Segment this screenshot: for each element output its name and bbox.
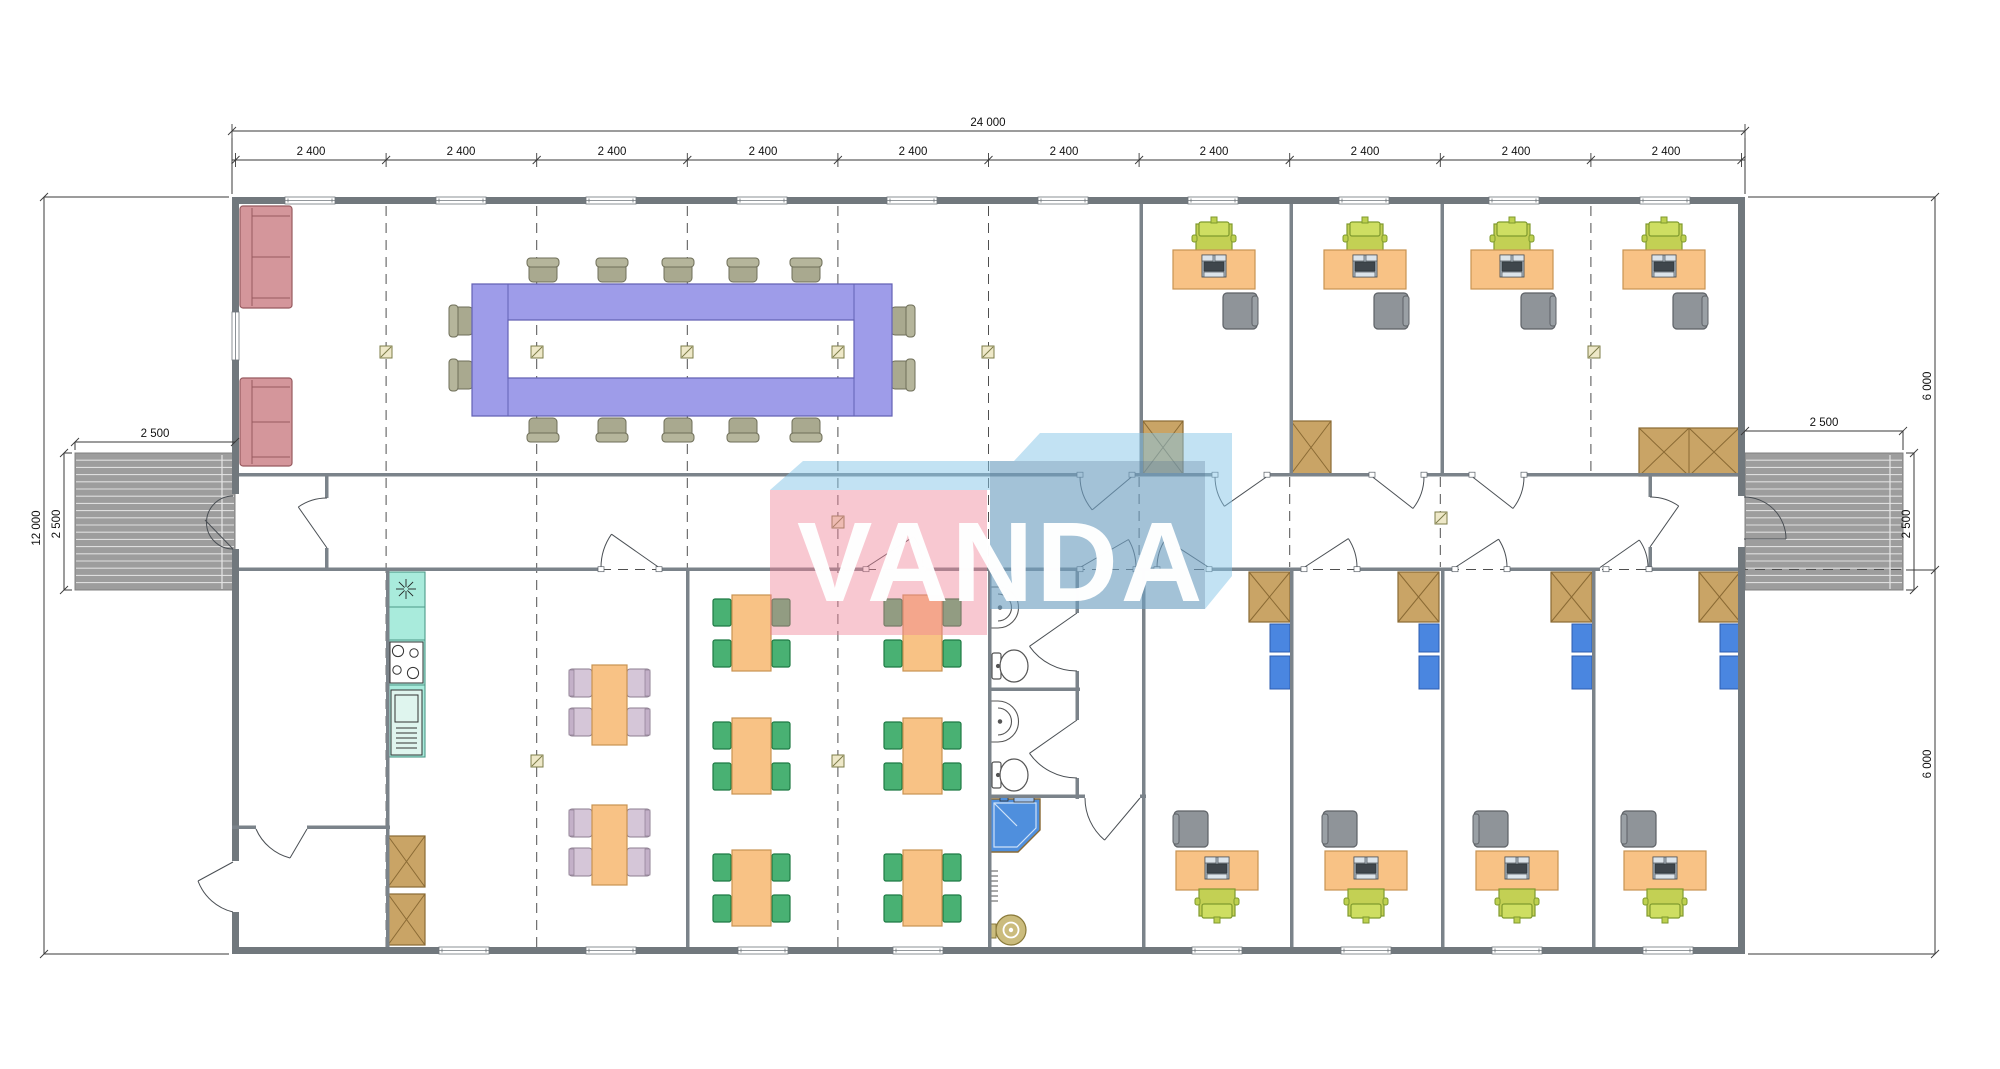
svg-text:2 400: 2 400: [1200, 146, 1229, 158]
svg-text:2 500: 2 500: [1901, 510, 1913, 539]
svg-text:2 400: 2 400: [1351, 146, 1380, 158]
svg-text:2 400: 2 400: [598, 146, 627, 158]
svg-text:2 400: 2 400: [1652, 146, 1681, 158]
svg-text:6 000: 6 000: [1922, 750, 1934, 779]
svg-text:12 000: 12 000: [31, 510, 43, 545]
svg-text:2 400: 2 400: [297, 146, 326, 158]
svg-text:2 400: 2 400: [899, 146, 928, 158]
svg-text:2 400: 2 400: [447, 146, 476, 158]
svg-text:2 400: 2 400: [1502, 146, 1531, 158]
svg-text:VANDA: VANDA: [797, 499, 1205, 625]
svg-text:6 000: 6 000: [1922, 372, 1934, 401]
svg-text:24 000: 24 000: [970, 117, 1005, 129]
svg-text:2 500: 2 500: [51, 510, 63, 539]
svg-text:2 500: 2 500: [1810, 417, 1839, 429]
svg-text:2 400: 2 400: [1050, 146, 1079, 158]
svg-text:2 400: 2 400: [749, 146, 778, 158]
svg-text:2 500: 2 500: [141, 428, 170, 440]
